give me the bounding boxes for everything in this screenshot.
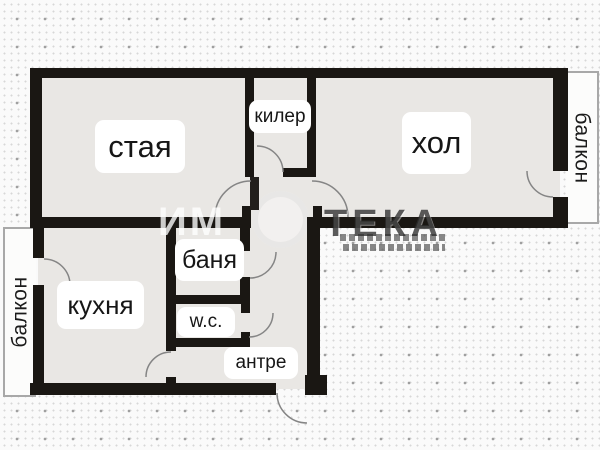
room-label-staya: стая bbox=[95, 120, 185, 173]
room-label-wc: w.c. bbox=[177, 307, 235, 337]
door-arc-banya bbox=[250, 252, 276, 278]
room-label-antre: антре bbox=[224, 347, 298, 379]
door-arc-entrance bbox=[277, 393, 307, 423]
door-arcs-layer bbox=[0, 0, 600, 450]
watermark-tagline-bar bbox=[343, 244, 445, 251]
door-arc-kitchen bbox=[146, 352, 171, 377]
door-arc-kiler bbox=[257, 146, 283, 172]
door-arc-wc bbox=[249, 313, 273, 337]
floor-plan: балкон балкон bbox=[0, 0, 600, 450]
room-label-banya: баня bbox=[175, 239, 244, 281]
room-label-hol: хол bbox=[402, 112, 471, 174]
room-label-kiler: килер bbox=[249, 100, 311, 133]
watermark-tagline-bar bbox=[340, 234, 448, 241]
room-label-kuhnya: кухня bbox=[57, 281, 144, 329]
door-arc-balcony-hol bbox=[527, 171, 553, 197]
